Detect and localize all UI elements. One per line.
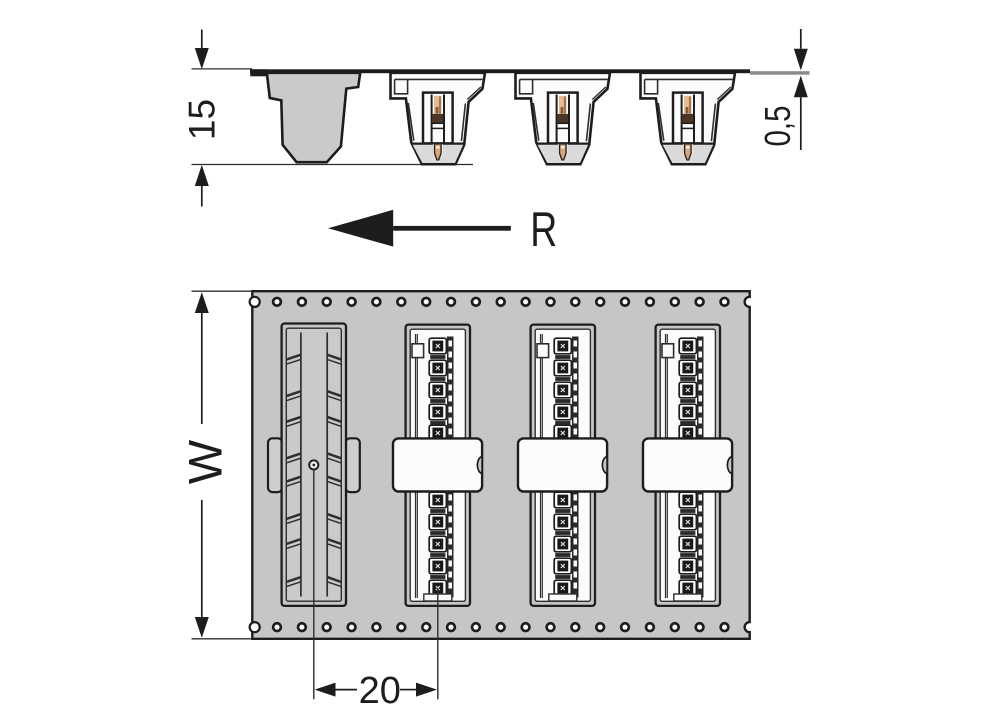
svg-text:W: W [178, 439, 231, 484]
svg-text:0,5: 0,5 [757, 106, 798, 147]
svg-text:20: 20 [359, 670, 401, 712]
svg-text:15: 15 [181, 99, 222, 140]
svg-text:R: R [530, 203, 557, 257]
